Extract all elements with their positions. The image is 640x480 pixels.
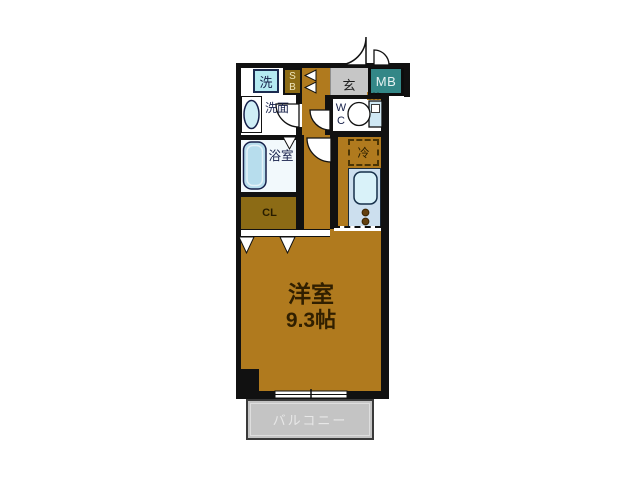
washroom-label: 洗面 xyxy=(257,100,297,114)
stove-burner xyxy=(362,209,369,216)
kitchen-sink xyxy=(354,172,377,204)
wc-label: W C xyxy=(334,102,348,130)
shoebox-door-marker xyxy=(305,70,316,81)
entrance-sub-door-arc xyxy=(374,50,389,65)
bathroom-label: 浴室 xyxy=(265,147,297,162)
main-room-area: 9.3帖 xyxy=(241,308,381,334)
shoebox-door-marker xyxy=(305,82,316,93)
toilet-tank-lid xyxy=(372,105,380,113)
main-room-name: 洋室 xyxy=(241,281,381,308)
closet-door-marker xyxy=(280,237,295,253)
entrance-label: 玄 xyxy=(330,76,368,92)
entrance-door-arc xyxy=(338,37,366,65)
fixtures-overlay xyxy=(0,0,640,480)
wc-door-arc xyxy=(310,110,330,130)
stove-burner xyxy=(362,218,369,225)
main-room-label: 洋室 9.3帖 xyxy=(241,281,381,334)
hall-door-arc xyxy=(307,138,331,162)
floor-plan: CL S B MB 洗 冷 バルコニー xyxy=(0,0,640,480)
toilet-bowl xyxy=(348,103,370,126)
closet-door-marker xyxy=(239,237,254,253)
